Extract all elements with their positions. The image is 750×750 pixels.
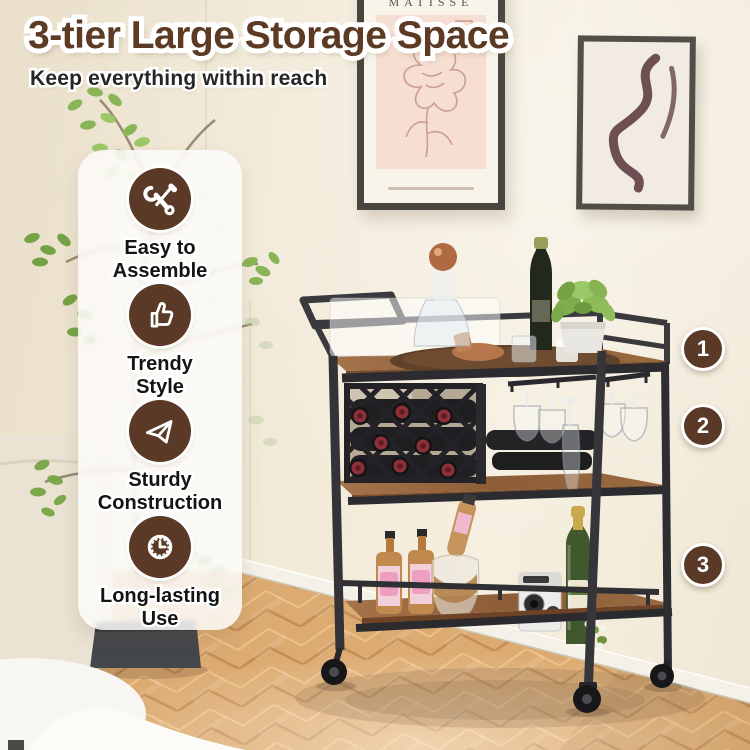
callout-badge-1: 1 [681,327,725,371]
feature-label-sturdy-construction: Sturdy Construction [98,469,222,515]
champagne-bottle-top [530,237,552,350]
feature-label-long-lasting-use: Long-lasting Use [100,585,220,631]
thumbs-up-icon [141,296,179,334]
tools-icon [141,180,179,218]
clock-icon [141,528,179,566]
wine-rack [347,384,486,484]
callout-badge-2: 2 [681,404,725,448]
feature-icon-circle [129,400,191,462]
feature-icon-circle [129,168,191,230]
page-subtitle: Keep everything within reach [30,67,509,91]
feature-label-easy-to-assemble: Easy to Assemble [113,237,208,283]
features-panel: Easy to Assemble Trendy Style Sturdy Con… [78,150,242,630]
feature-icon-circle [129,284,191,346]
product-lifestyle-image: MATISSE [0,0,750,750]
glass-decanter [414,243,470,346]
cart-shadow [295,668,705,728]
page-title: 3-tier Large Storage Space [28,14,509,58]
glass-rack [508,374,650,392]
feature-label-trendy-style: Trendy Style [127,353,193,399]
headline-block: 3-tier Large Storage Space Keep everythi… [28,14,509,91]
feature-icon-circle [129,516,191,578]
ice-bucket [432,492,480,621]
paper-plane-icon [141,412,179,450]
glass-tumbler [512,336,536,362]
callout-badge-3: 3 [681,543,725,587]
